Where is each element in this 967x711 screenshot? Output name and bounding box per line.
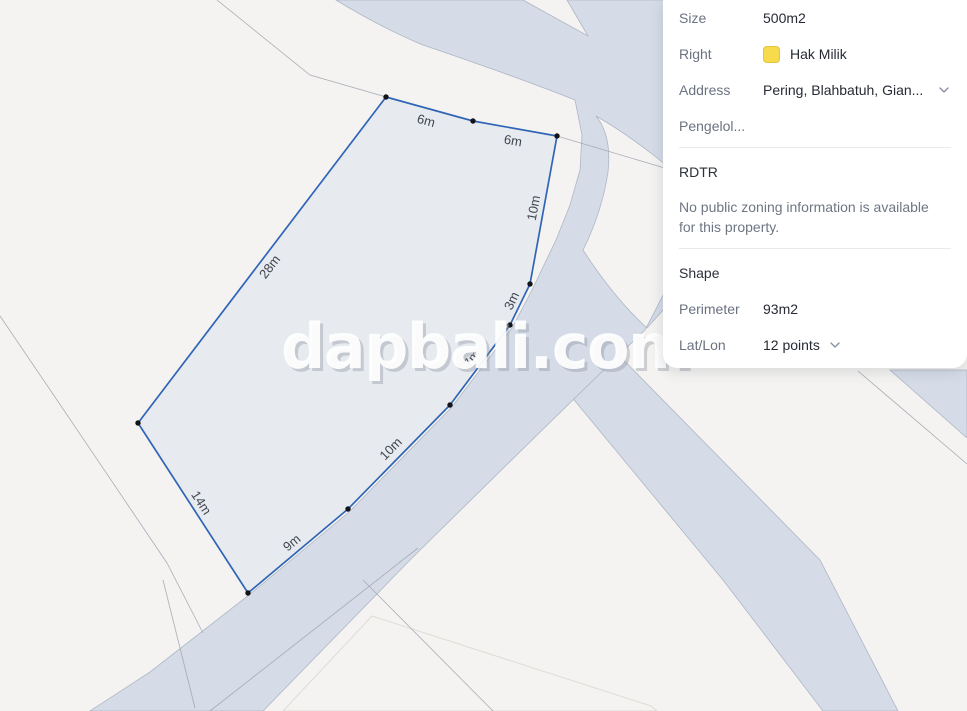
edge-label: 6m xyxy=(503,132,523,150)
right-color-swatch xyxy=(763,46,780,63)
address-label: Address xyxy=(679,82,763,98)
shape-title: Shape xyxy=(679,255,951,291)
right-label: Right xyxy=(679,46,763,62)
row-manager: Pengelol... xyxy=(679,108,951,144)
perimeter-label: Perimeter xyxy=(679,301,763,317)
row-latlon[interactable]: Lat/Lon 12 points xyxy=(679,327,951,363)
size-value: 500m2 xyxy=(763,10,806,26)
address-expand-button[interactable] xyxy=(939,87,951,93)
rdtr-title: RDTR xyxy=(679,148,951,196)
watermark: dapbali.com dapbali.com xyxy=(281,310,694,386)
map-app: 6m 6m 10m 3m 7m 10m 9m 14m 28m dapbali.c… xyxy=(0,0,967,711)
chevron-down-icon xyxy=(830,342,840,348)
perimeter-value: 93m2 xyxy=(763,301,798,317)
row-right: Right Hak Milik xyxy=(679,36,951,72)
row-size: Size 500m2 xyxy=(679,0,951,36)
latlon-value: 12 points xyxy=(763,337,820,353)
latlon-label: Lat/Lon xyxy=(679,337,763,353)
right-value: Hak Milik xyxy=(790,46,847,62)
parcel-vertex xyxy=(527,281,532,286)
rdtr-message-line1: No public zoning information is availabl… xyxy=(679,197,951,217)
parcel-vertex xyxy=(470,118,475,123)
parcel-vertex xyxy=(245,590,250,595)
parcel-vertex xyxy=(447,402,452,407)
watermark-text: dapbali.com xyxy=(281,310,691,383)
parcel-vertex xyxy=(383,94,388,99)
size-label: Size xyxy=(679,10,763,26)
row-address[interactable]: Address Pering, Blahbatuh, Gian... xyxy=(679,72,951,108)
row-perimeter: Perimeter 93m2 xyxy=(679,291,951,327)
divider xyxy=(679,248,951,249)
rdtr-message: No public zoning information is availabl… xyxy=(679,197,951,237)
parcel-vertex xyxy=(345,506,350,511)
address-value: Pering, Blahbatuh, Gian... xyxy=(763,82,923,98)
chevron-down-icon xyxy=(939,87,949,93)
latlon-expand-button[interactable] xyxy=(830,342,842,348)
rdtr-message-line2: for this property. xyxy=(679,217,951,237)
parcel-vertex xyxy=(135,420,140,425)
manager-label: Pengelol... xyxy=(679,118,763,134)
property-panel: Size 500m2 Right Hak Milik Address Perin… xyxy=(663,0,967,368)
parcel-vertex xyxy=(554,133,559,138)
